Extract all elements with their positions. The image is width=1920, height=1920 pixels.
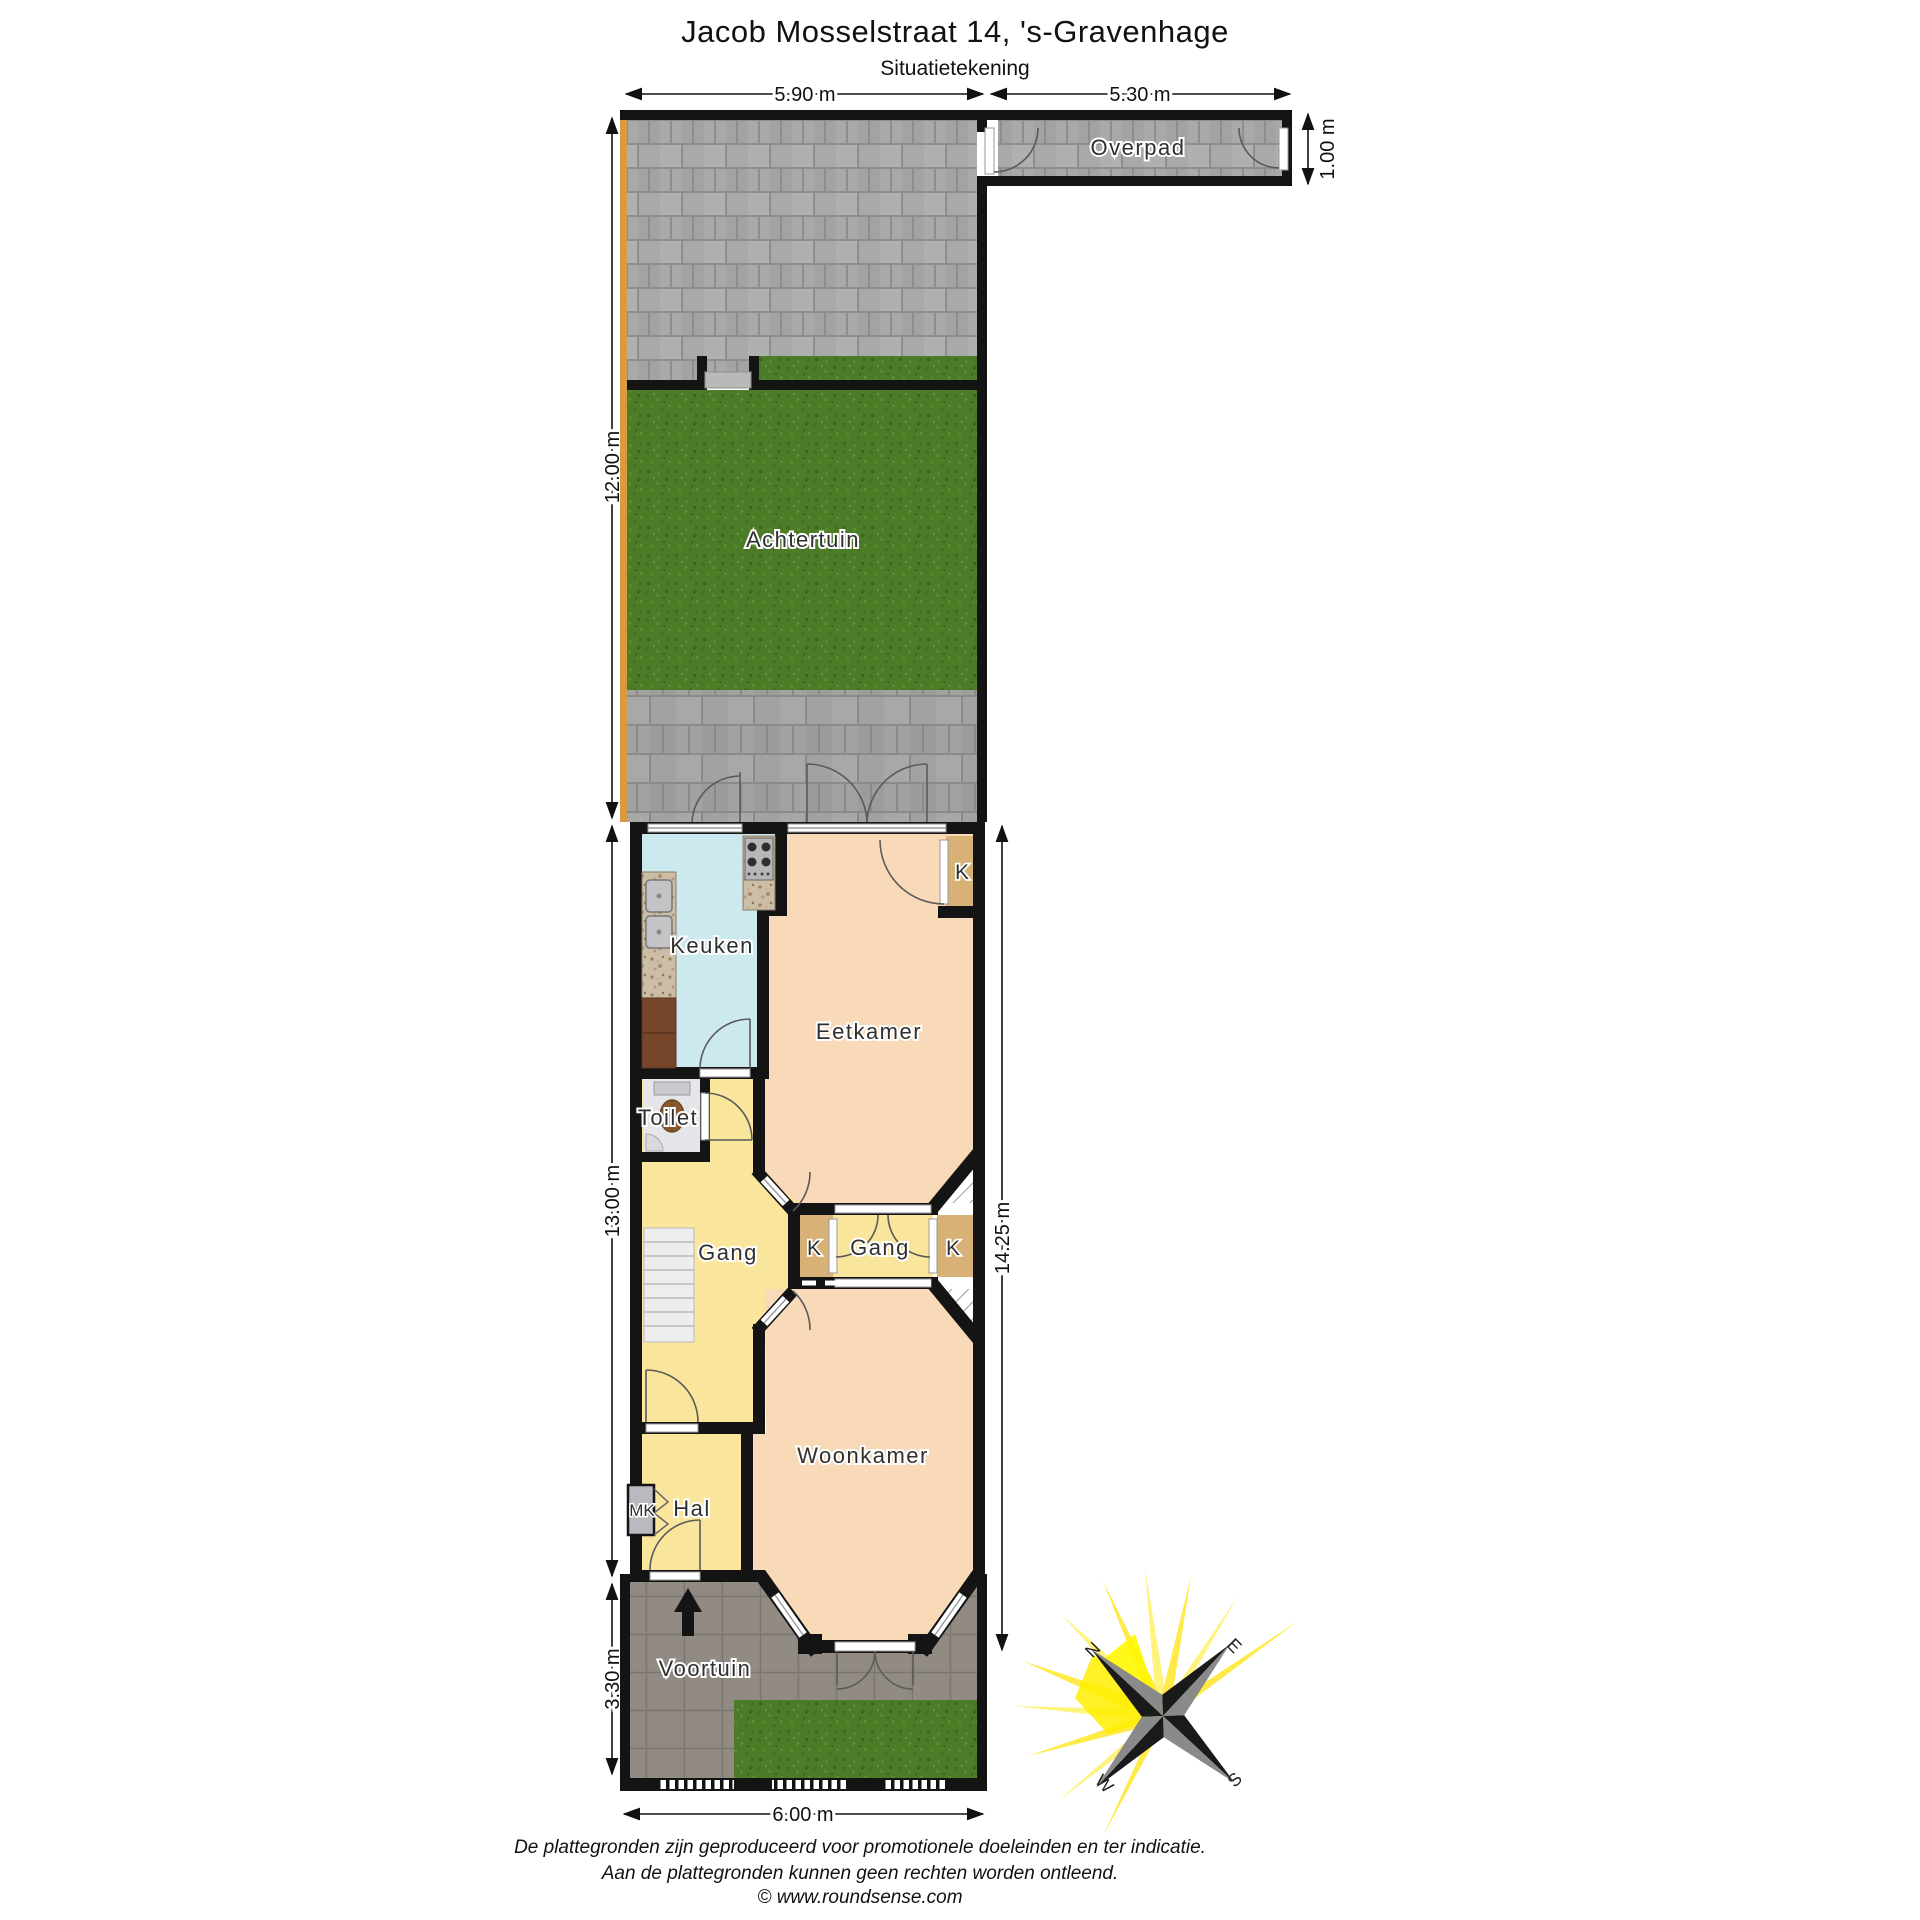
voortuin-right-wall (977, 1574, 987, 1791)
back-paving (627, 120, 977, 388)
page-title: Jacob Mosselstraat 14, 's-Gravenhage (681, 14, 1229, 49)
terrace-paving (627, 690, 977, 822)
toilet-bottom-wall (630, 1152, 710, 1162)
overpad-gate-left (985, 128, 994, 174)
compass: N E S W (1013, 1568, 1302, 1855)
hal-woonkamer-wall (741, 1434, 753, 1574)
front-fence-rail (772, 1780, 846, 1789)
header: Jacob Mosselstraat 14, 's-Gravenhage Sit… (681, 14, 1229, 80)
compass-south-label: S (1223, 1768, 1246, 1791)
garden-separator-wall-left (627, 380, 702, 390)
sink-drain (657, 894, 662, 899)
gang-woonkamer-wall (753, 1324, 765, 1422)
garden-fence-left (620, 118, 627, 822)
garden-right-wall (977, 186, 987, 822)
label-toilet: Toilet (638, 1105, 698, 1130)
staircase (644, 1228, 694, 1342)
voortuin-hedge (734, 1700, 977, 1778)
burner (748, 858, 757, 867)
stove-knob (748, 873, 751, 876)
page-subtitle: Situatietekening (880, 57, 1029, 80)
garden-separator-wall-right (753, 380, 977, 390)
sink-drain (657, 930, 662, 935)
compass-east-label: E (1223, 1634, 1246, 1657)
closet-eetkamer-door (940, 840, 948, 904)
burner (762, 858, 771, 867)
site-top-wall (620, 110, 1292, 120)
closet-right-door (929, 1219, 937, 1273)
gang-hal-door (646, 1424, 698, 1432)
closet-left-door (829, 1219, 837, 1273)
label-gang: Gang (698, 1240, 758, 1265)
dim-house-depth-left: 13.00 m (602, 1165, 624, 1237)
dim-overpad-depth: 1.00 m (1317, 118, 1339, 179)
stove-knob (767, 873, 770, 876)
stove-knob (754, 873, 757, 876)
garden-gate-step (705, 372, 751, 388)
hedge-strip (757, 356, 977, 384)
label-voortuin: Voortuin (659, 1656, 752, 1681)
front-door (650, 1572, 700, 1580)
label-closet-left: K (807, 1237, 821, 1260)
gang-eetkamer-wall (753, 1079, 765, 1176)
label-eetkamer: Eetkamer (816, 1019, 922, 1044)
dim-back-width-left: 5.90 m (774, 84, 835, 106)
overpad-gate-right (1279, 128, 1288, 170)
house-right-wall (973, 822, 985, 1577)
footer-disclaimer-line1: De plattegronden zijn geproduceerd voor … (514, 1837, 1206, 1858)
keuken-door (700, 1069, 750, 1077)
gang-middle-door-top (835, 1205, 931, 1213)
closet-eetkamer-bottom-wall (938, 906, 973, 918)
closet-left-wall (788, 1203, 800, 1289)
burner (748, 843, 757, 852)
bay-door (835, 1642, 915, 1651)
burner (762, 843, 771, 852)
keuken-wall-upper (775, 834, 787, 914)
stair-flight (644, 1228, 694, 1342)
label-hal: Hal (673, 1496, 711, 1521)
overpad-bottom-wall (977, 176, 1292, 186)
woonkamer-floor-strip (753, 1434, 767, 1574)
back-site (620, 110, 1292, 824)
footer: De plattegronden zijn geproduceerd voor … (514, 1837, 1206, 1908)
label-woonkamer: Woonkamer (797, 1443, 929, 1468)
keuken-eetkamer-wall (757, 914, 769, 1079)
label-achtertuin: Achtertuin (746, 527, 860, 552)
label-closet-eetkamer: K (955, 861, 969, 884)
label-closet-right: K (946, 1237, 960, 1260)
toilet-cistern (654, 1082, 690, 1095)
floorplan-drawing: Jacob Mosselstraat 14, 's-Gravenhage Sit… (0, 0, 1920, 1920)
dim-front-width: 6.00 m (772, 1804, 833, 1826)
front-fence-rail (660, 1780, 734, 1789)
stove-knob (761, 873, 764, 876)
dim-back-width-right: 5.30 m (1109, 84, 1170, 106)
dim-house-depth-right: 14.25 m (992, 1202, 1014, 1274)
label-keuken: Keuken (670, 933, 754, 958)
footer-disclaimer-line2: Aan de plattegronden kunnen geen rechten… (601, 1863, 1119, 1884)
label-mk: MK (629, 1501, 655, 1520)
front-fence-rail (884, 1780, 948, 1789)
woonkamer-floor (765, 1289, 973, 1650)
label-overpad: Overpad (1091, 135, 1186, 160)
footer-copyright: © www.roundsense.com (757, 1887, 962, 1908)
bay-corner-pier-left (798, 1634, 822, 1654)
voortuin-left-wall (620, 1574, 630, 1791)
toilet-door (701, 1093, 709, 1140)
house-left-wall (630, 822, 642, 1582)
floorplan-page: Jacob Mosselstraat 14, 's-Gravenhage Sit… (0, 0, 1920, 1920)
label-gang-middle: Gang (850, 1235, 910, 1260)
